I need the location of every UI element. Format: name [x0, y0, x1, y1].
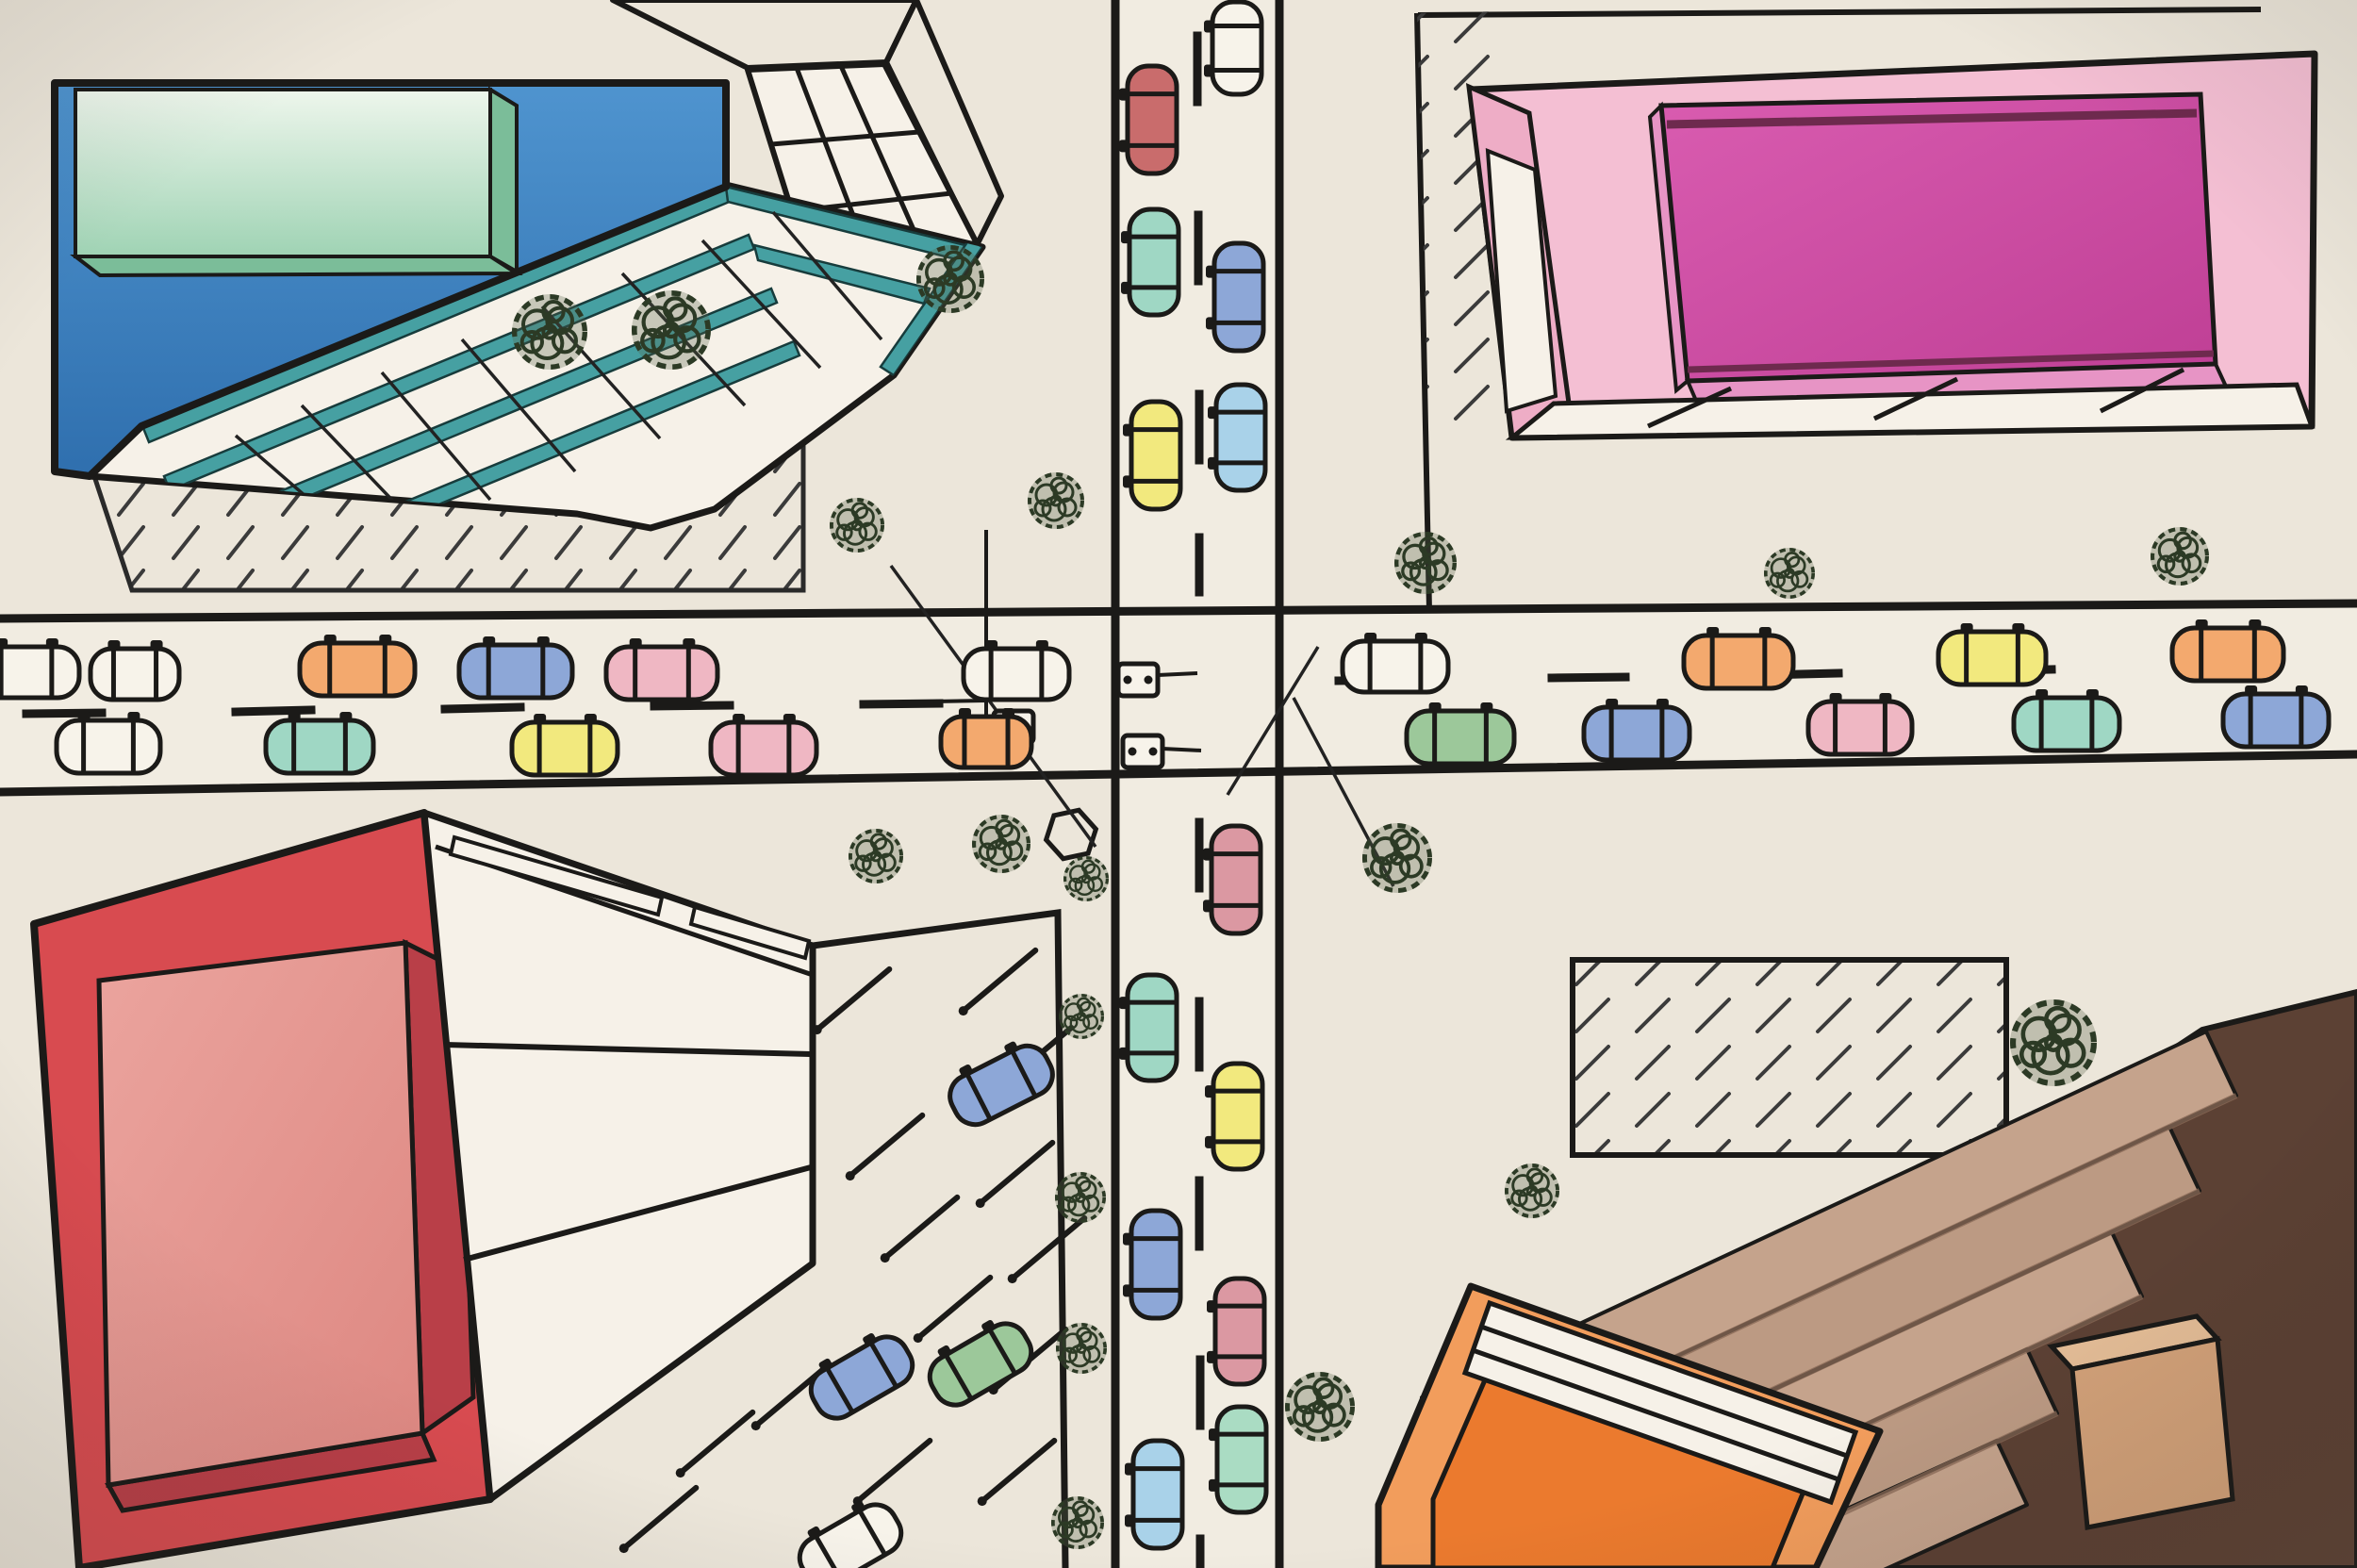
photo-vignette: [0, 0, 2357, 1568]
city-intersection-drawing: [0, 0, 2357, 1568]
drawing-photo: [0, 0, 2357, 1568]
